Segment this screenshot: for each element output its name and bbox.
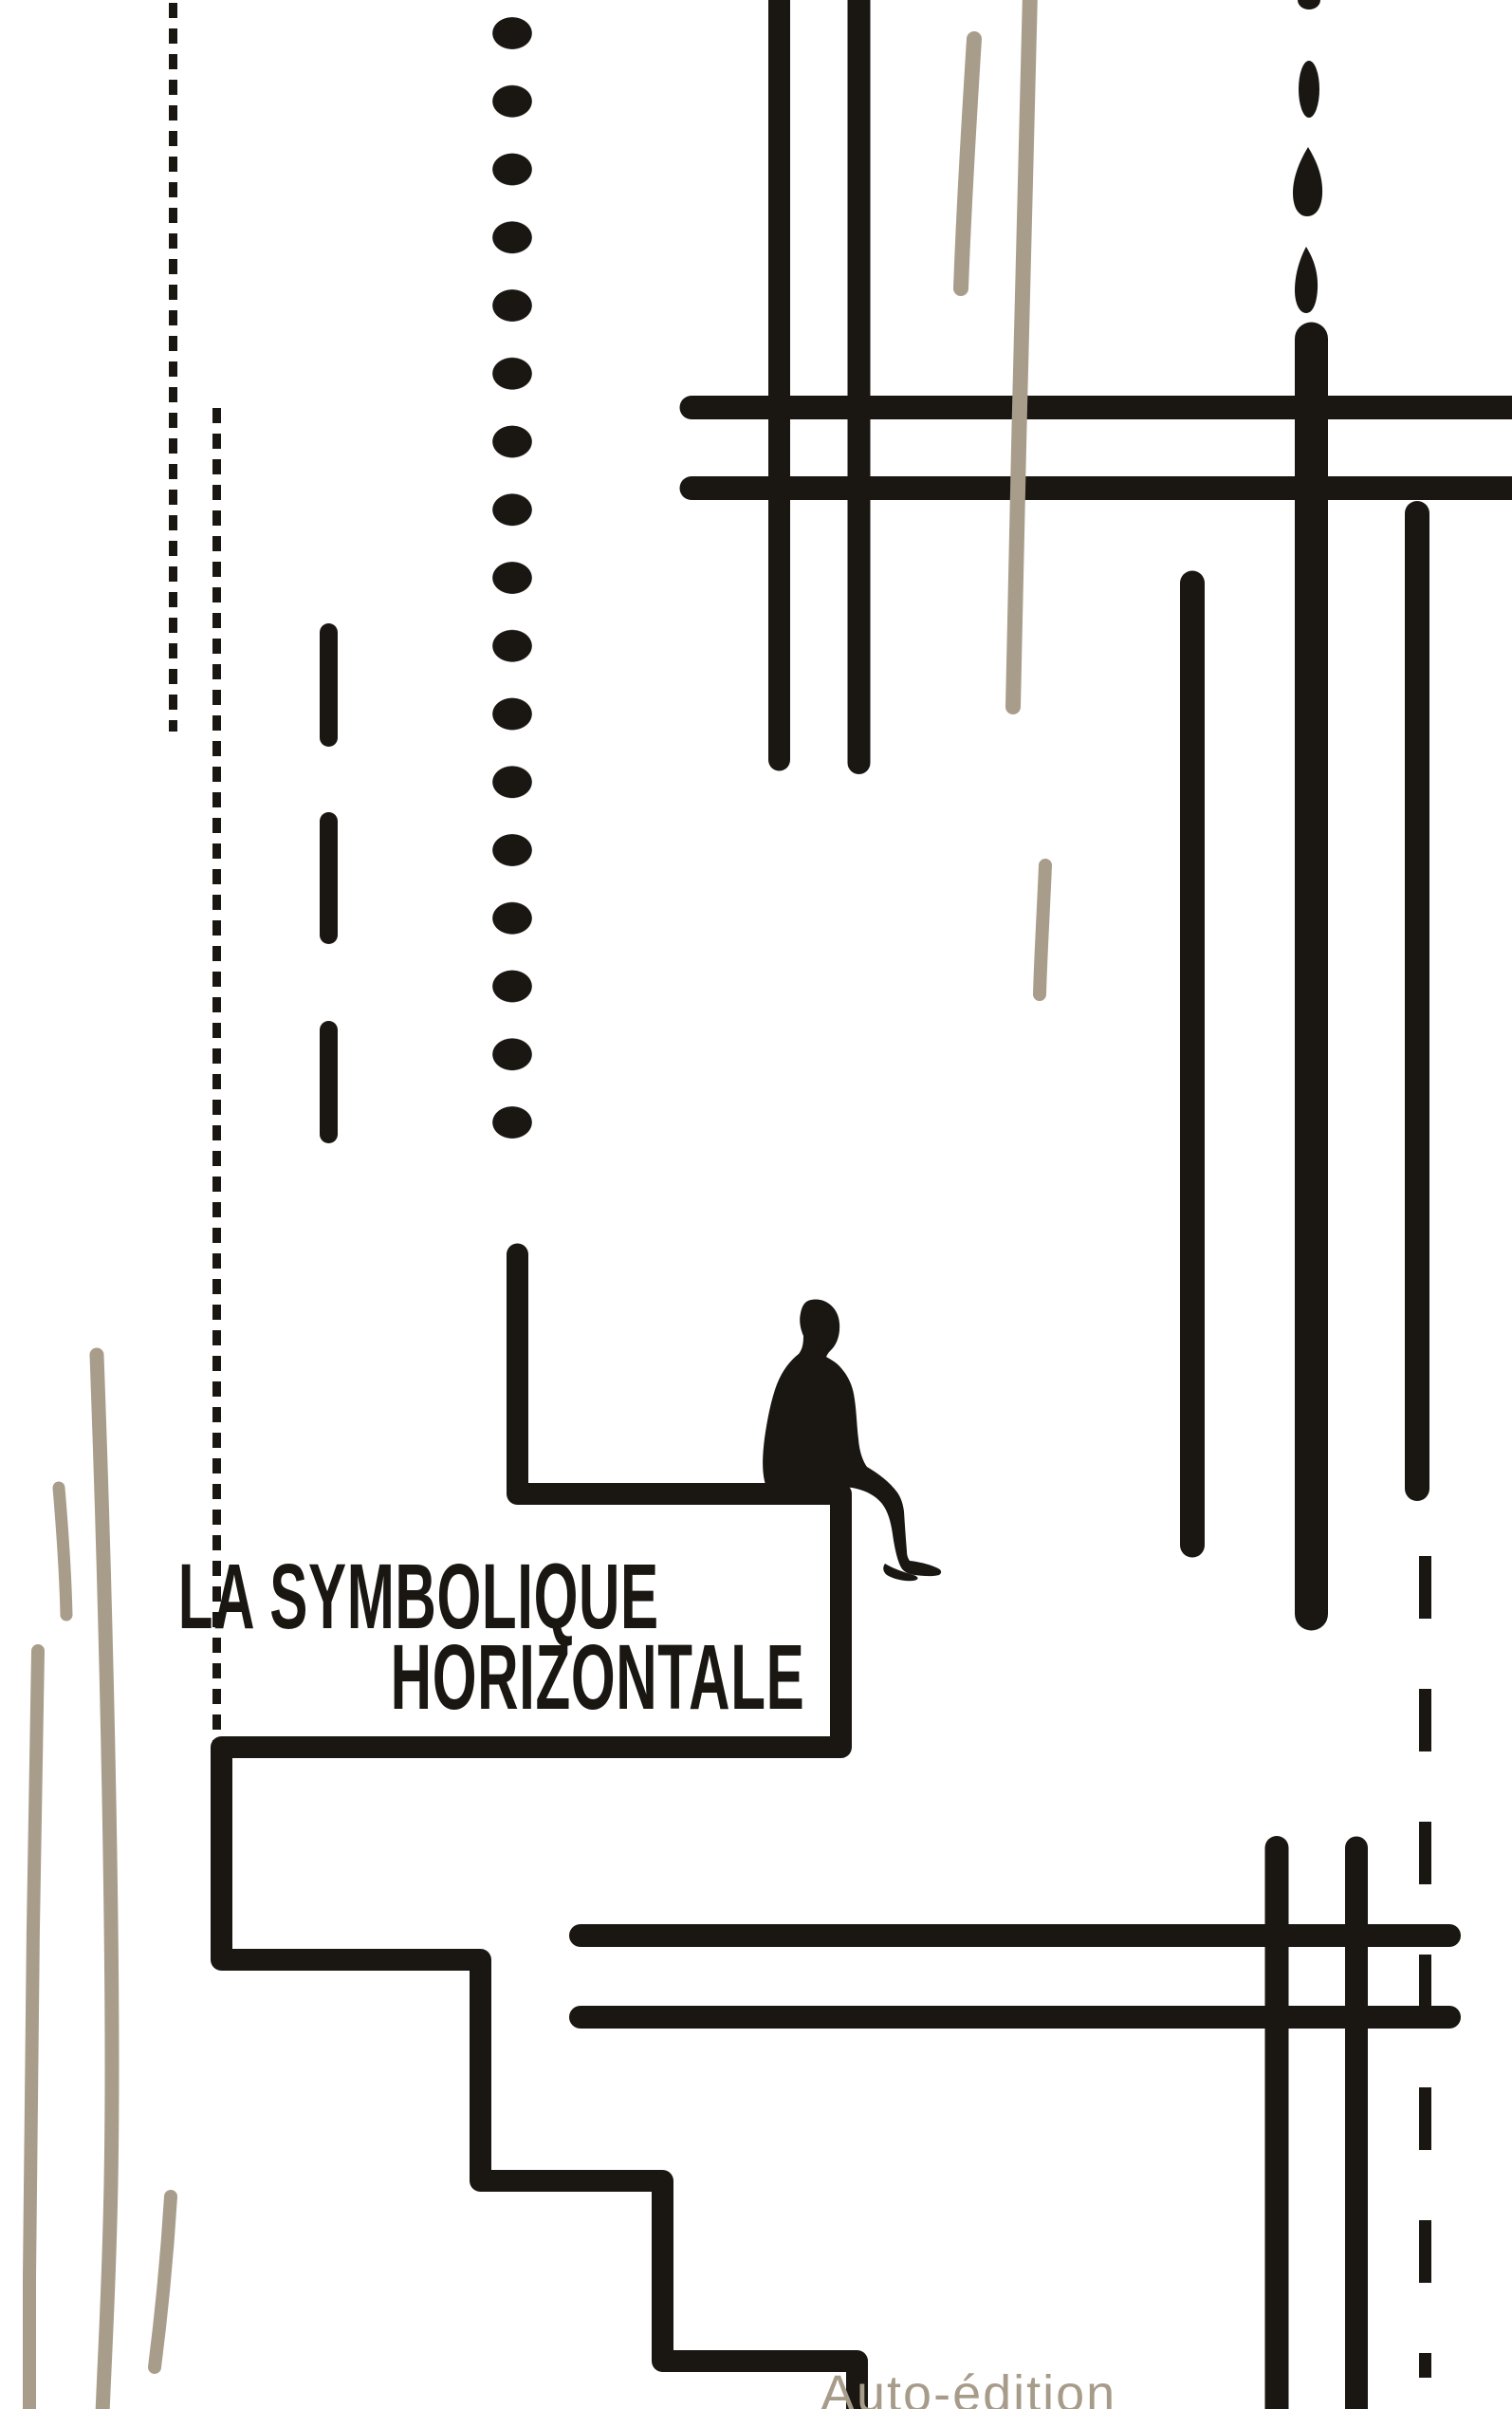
publisher-text: Auto-édition — [821, 2364, 1116, 2409]
title-line-2: HORIZONTALE — [390, 1631, 804, 1723]
black-linework — [0, 0, 1512, 2409]
book-cover: LA SYMBOLIQUE HORIZONTALE Auto-édition — [0, 0, 1512, 2409]
top-right-horizontal-pair — [691, 408, 1512, 489]
beige-accent-strokes — [29, 0, 1045, 2409]
bottom-horizontal-pair — [581, 1936, 1449, 2017]
top-left-vertical-pair — [780, 0, 859, 763]
ink-drips — [1293, 0, 1322, 313]
sitting-man-silhouette — [754, 1295, 944, 1580]
